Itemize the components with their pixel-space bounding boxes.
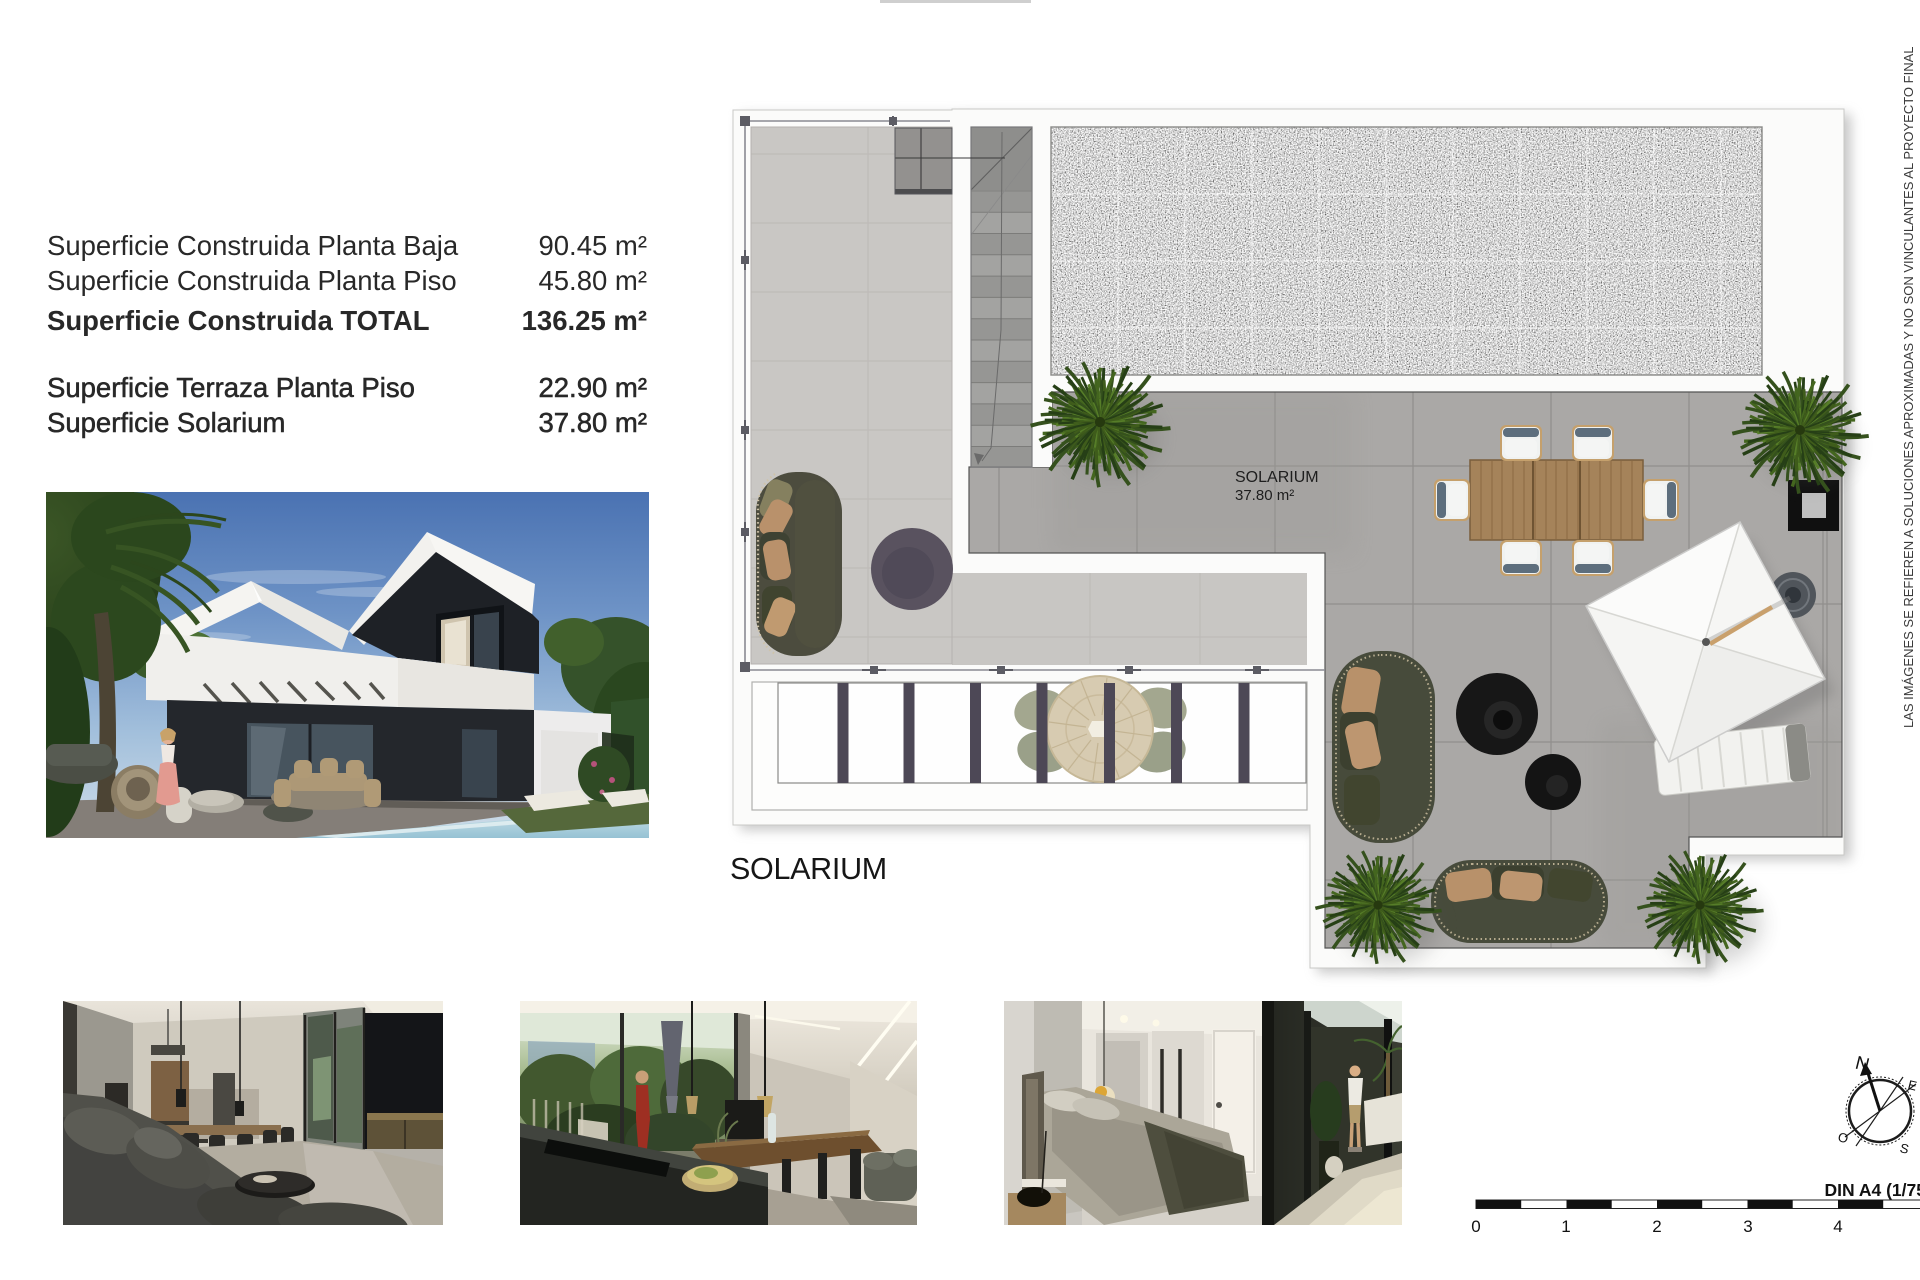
svg-text:0: 0: [1471, 1217, 1480, 1235]
svg-text:1: 1: [1561, 1217, 1570, 1235]
svg-text:3: 3: [1743, 1217, 1752, 1235]
svg-text:DIN A4 (1/75: DIN A4 (1/75: [1825, 1180, 1920, 1200]
svg-text:S: S: [1898, 1140, 1910, 1157]
svg-text:2: 2: [1652, 1217, 1661, 1235]
svg-text:E: E: [1906, 1077, 1918, 1094]
svg-text:O: O: [1836, 1129, 1849, 1146]
svg-text:37.80 m²: 37.80 m²: [1235, 487, 1294, 504]
svg-text:SOLARIUM: SOLARIUM: [1235, 469, 1319, 486]
svg-text:4: 4: [1833, 1217, 1842, 1235]
